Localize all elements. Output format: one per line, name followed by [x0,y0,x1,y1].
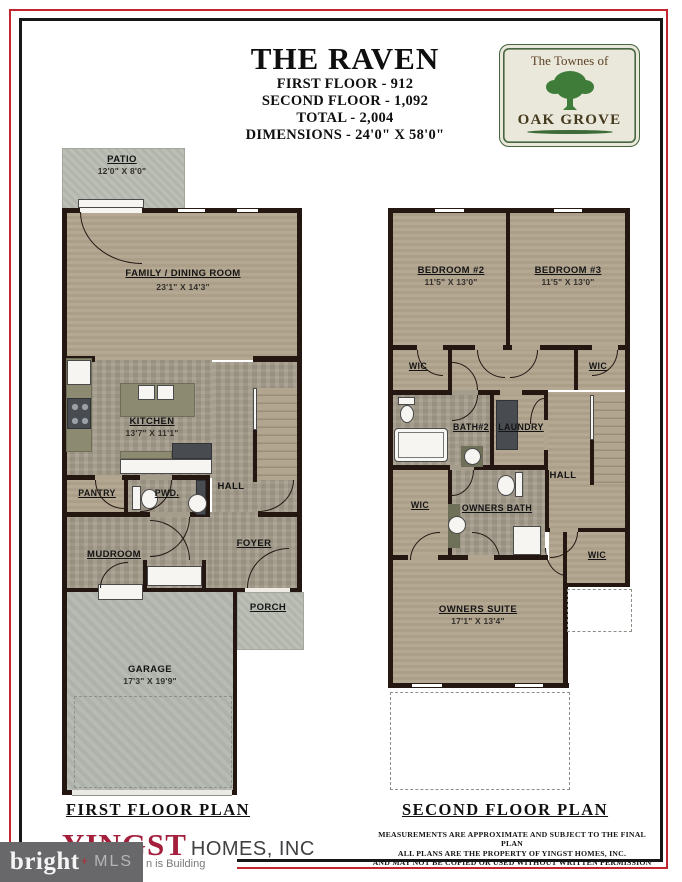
label-wic: WIC [589,361,607,371]
oak-tree-icon [543,69,597,111]
toilet-symbol [400,405,414,423]
label-hall: HALL [218,481,245,492]
label-porch: PORCH [250,602,286,613]
wall [253,430,257,482]
toilet-symbol [497,475,515,496]
builder-tagline: n is Building [146,858,205,870]
disclaimer: MEASUREMENTS ARE APPROXIMATE AND SUBJECT… [368,830,656,867]
mls-wordmark: MLS [94,853,133,871]
label-bedroom2: BEDROOM #211'5" X 13'0" [418,265,485,287]
label-garage: GARAGE17'3" X 19'9" [123,664,176,686]
window [515,683,543,688]
sink-symbol [157,385,174,400]
garage-outline-dashed [74,696,232,788]
disclaimer-line: MEASUREMENTS ARE APPROXIMATE AND SUBJECT… [368,830,656,849]
wall [253,356,302,362]
second-floor-area: SECOND FLOOR - 1,092 [150,93,540,110]
wall [490,395,494,465]
lower-floor-outline-dashed [390,692,570,790]
label-laundry: LAUNDRY [498,422,543,432]
dishwasher-symbol [172,443,212,459]
wall [574,350,578,390]
kitchen-counter [120,459,212,474]
label-wic: WIC [411,500,429,510]
floorplan-flyer: THE RAVEN FIRST FLOOR - 912 SECOND FLOOR… [0,0,682,882]
sparkle-icon: + [81,857,89,867]
community-badge: The Townes of OAK GROVE [499,44,640,147]
label-patio: PATIO12'0" X 8'0" [98,154,147,176]
shower-symbol [513,526,541,555]
patio-door-threshold [78,199,144,208]
overall-dimensions: DIMENSIONS - 24'0" X 58'0" [150,127,540,144]
label-kitchen: KITCHEN13'7" X 11'1" [126,416,179,438]
label-family-dining: FAMILY / DINING ROOM23'1" X 14'3" [121,268,245,293]
first-floor-plan-title: FIRST FLOOR PLAN [66,800,250,820]
refrigerator-symbol [67,360,91,385]
wall [206,480,210,515]
closet-shelf [147,566,202,586]
door-opening [544,420,548,450]
stove-symbol [67,398,91,429]
wall [124,480,128,512]
total-area: TOTAL - 2,004 [150,110,540,127]
bright-mls-watermark: bright+MLS [0,842,143,882]
label-bath2: BATH#2 [453,422,489,432]
room-porch [237,592,304,650]
label-pantry: PANTRY [78,488,116,498]
wall [590,440,594,485]
wall [563,583,630,587]
wall [258,512,298,517]
label-mudroom: MUDROOM [87,549,141,560]
sink-symbol [464,448,481,465]
stairs [594,395,625,483]
wall [388,208,393,688]
window [412,683,442,688]
bathtub-symbol [394,428,448,462]
sink-symbol [188,494,207,513]
sink-symbol [138,385,155,400]
label-owners-suite: OWNERS SUITE17'1" X 13'4" [439,604,517,626]
stairs [257,388,297,480]
wall [506,212,510,345]
disclaimer-line: AND MAY NOT BE COPIED OR USED WITHOUT WR… [368,858,656,867]
front-door-opening [245,588,290,592]
stair-railing [590,395,594,440]
disclaimer-line: ALL PLANS ARE THE PROPERTY OF YINGST HOM… [368,849,656,858]
garage-door-opening [72,790,232,796]
second-floor-plan-title: SECOND FLOOR PLAN [402,800,608,820]
toilet-symbol [515,472,523,497]
label-hall2: HALL [550,470,577,481]
bright-wordmark: bright [10,848,80,876]
community-prefix: The Townes of [500,53,639,69]
window [237,208,258,213]
window [178,208,205,213]
wall [62,475,210,480]
door-opening [500,390,522,395]
label-owners-bath: OWNERS BATH [462,503,532,513]
wall [297,208,302,592]
window [554,208,582,213]
label-foyer: FOYER [237,538,272,549]
plan-header: THE RAVEN FIRST FLOOR - 912 SECOND FLOOR… [150,42,540,144]
label-wic: WIC [588,550,606,560]
label-powder: PWD. [155,488,180,498]
wall [62,592,67,795]
first-floor-area: FIRST FLOOR - 912 [150,76,540,93]
wall [202,560,206,588]
label-wic: WIC [409,361,427,371]
builder-name-rest: HOMES, INC [191,838,315,860]
toilet-symbol [398,397,415,405]
wall [545,470,549,532]
label-bedroom3: BEDROOM #311'5" X 13'0" [535,265,602,287]
window [435,208,464,213]
badge-underline [527,130,613,134]
wall [233,592,237,795]
kitchen-counter [120,451,172,459]
plan-title: THE RAVEN [150,42,540,76]
community-name: OAK GROVE [500,112,639,129]
sink-symbol [448,516,466,534]
stair-railing [253,388,257,430]
roof-outline-dashed [567,589,632,632]
